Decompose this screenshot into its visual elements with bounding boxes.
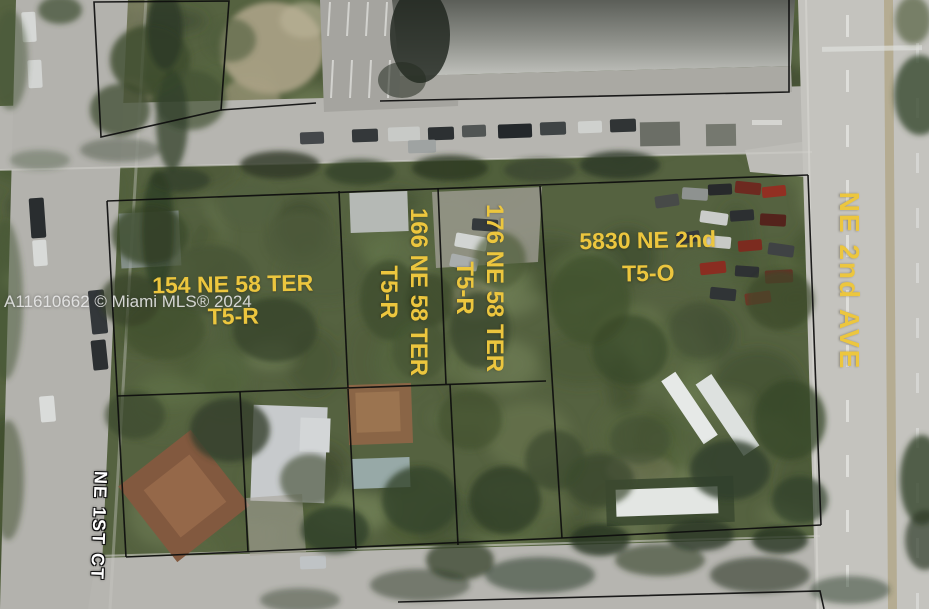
- parcel-address: 5830 NE 2nd: [552, 222, 743, 258]
- mls-watermark: A11610662 © Miami MLS® 2024: [4, 292, 252, 312]
- parcel-zoning: T5-R: [373, 177, 403, 407]
- parcel-label-5830: 5830 NE 2nd T5-O: [552, 222, 743, 291]
- parcel-address: 166 NE 58 TER: [403, 177, 433, 407]
- parcel-address: 176 NE 58 TER: [479, 173, 509, 403]
- street-label-ne-2nd-ave: NE 2nd AVE: [830, 171, 868, 391]
- parcel-label-166: 166 NE 58 TER T5-R: [369, 177, 433, 407]
- aerial-map: 154 NE 58 TER T5-R 166 NE 58 TER T5-R 17…: [0, 0, 929, 609]
- parcel-zoning: T5-R: [449, 173, 479, 403]
- parcel-label-176: 176 NE 58 TER T5-R: [445, 173, 509, 403]
- parcel-zoning: T5-O: [553, 255, 744, 291]
